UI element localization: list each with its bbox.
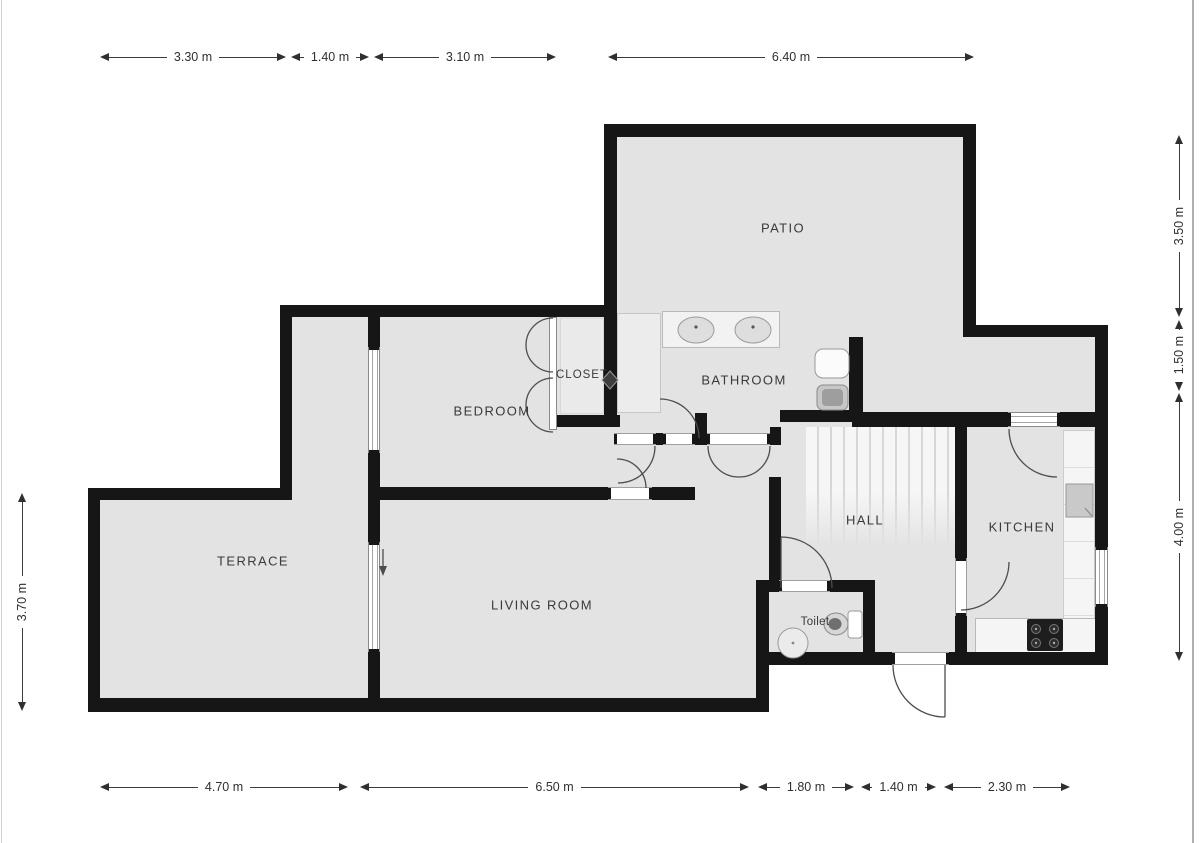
wall — [1060, 412, 1108, 427]
dimension-right-1: 3.50 m — [1173, 135, 1185, 317]
room-label-toilet: Toilet — [801, 616, 830, 628]
room-label-bathroom: BATHROOM — [701, 373, 786, 388]
room-label-hall: HALL — [846, 513, 884, 528]
wall — [769, 477, 781, 592]
wall — [280, 305, 292, 500]
kitchen-tall-cabinets — [1063, 430, 1095, 620]
wall — [963, 325, 1107, 337]
dimension-top-1: 3.30 m — [100, 51, 286, 63]
wall — [552, 415, 620, 427]
wall — [770, 427, 781, 445]
wall — [963, 124, 976, 337]
kitchen-bottom-counter — [975, 618, 1096, 653]
wall — [852, 412, 1008, 427]
wall — [756, 580, 769, 712]
wall — [368, 317, 380, 347]
wall — [652, 487, 695, 500]
wall — [955, 616, 967, 665]
wall — [695, 413, 707, 445]
right-frame-line — [1192, 0, 1194, 843]
wall — [368, 652, 380, 702]
door-opening — [614, 433, 656, 445]
wall — [88, 698, 769, 712]
wall — [88, 488, 288, 500]
wall — [863, 580, 875, 665]
closet-interior — [560, 318, 604, 414]
door-opening-toilet — [779, 580, 830, 592]
window-kitchen-east — [1095, 547, 1108, 607]
dimension-bottom-4: 1.40 m — [861, 781, 936, 793]
left-frame-line — [1, 0, 2, 843]
dimension-bottom-1: 4.70 m — [100, 781, 348, 793]
dimension-bottom-2: 6.50 m — [360, 781, 749, 793]
window-bedroom-west — [368, 347, 380, 453]
door-opening-bedroom — [608, 487, 652, 500]
wall — [368, 487, 608, 500]
wall — [604, 124, 976, 137]
wall — [604, 317, 617, 415]
window-kitchen-north — [1008, 412, 1060, 427]
room-label-terrace: TERRACE — [217, 554, 289, 569]
dimension-right-2: 1.50 m — [1173, 320, 1185, 391]
wall — [949, 652, 1107, 665]
door-opening-kitchen — [955, 558, 967, 616]
door-opening — [663, 433, 695, 445]
wall — [955, 427, 967, 558]
room-label-bedroom: BEDROOM — [454, 404, 531, 419]
floor-plan-canvas: PATIO CLOSET BATHROOM BEDROOM HALL KITCH… — [0, 0, 1200, 843]
room-label-patio: PATIO — [761, 221, 805, 236]
dimension-top-3: 3.10 m — [374, 51, 556, 63]
door-arc-entrance — [893, 665, 945, 717]
entrance-door-opening — [892, 652, 949, 665]
wall — [780, 410, 863, 422]
wall — [604, 124, 617, 317]
dimension-bottom-5: 2.30 m — [944, 781, 1070, 793]
dimension-top-4: 6.40 m — [608, 51, 974, 63]
floor-terrace-living — [94, 494, 762, 706]
shower-cabinet — [617, 313, 661, 413]
window-terrace-living — [368, 542, 380, 652]
wall — [88, 488, 100, 712]
wall — [769, 580, 779, 592]
room-label-closet: CLOSET — [556, 369, 608, 381]
dimension-bottom-3: 1.80 m — [758, 781, 854, 793]
dimension-left-1: 3.70 m — [16, 493, 28, 711]
vanity-counter — [662, 311, 780, 348]
dimension-top-2: 1.40 m — [291, 51, 369, 63]
wall — [280, 305, 617, 317]
room-label-kitchen: KITCHEN — [989, 520, 1056, 535]
wall — [830, 580, 875, 592]
door-opening-double — [707, 433, 770, 445]
wall — [1095, 325, 1108, 547]
room-label-living-room: LIVING ROOM — [491, 598, 593, 613]
wall — [849, 337, 863, 412]
dimension-right-3: 4.00 m — [1173, 393, 1185, 661]
